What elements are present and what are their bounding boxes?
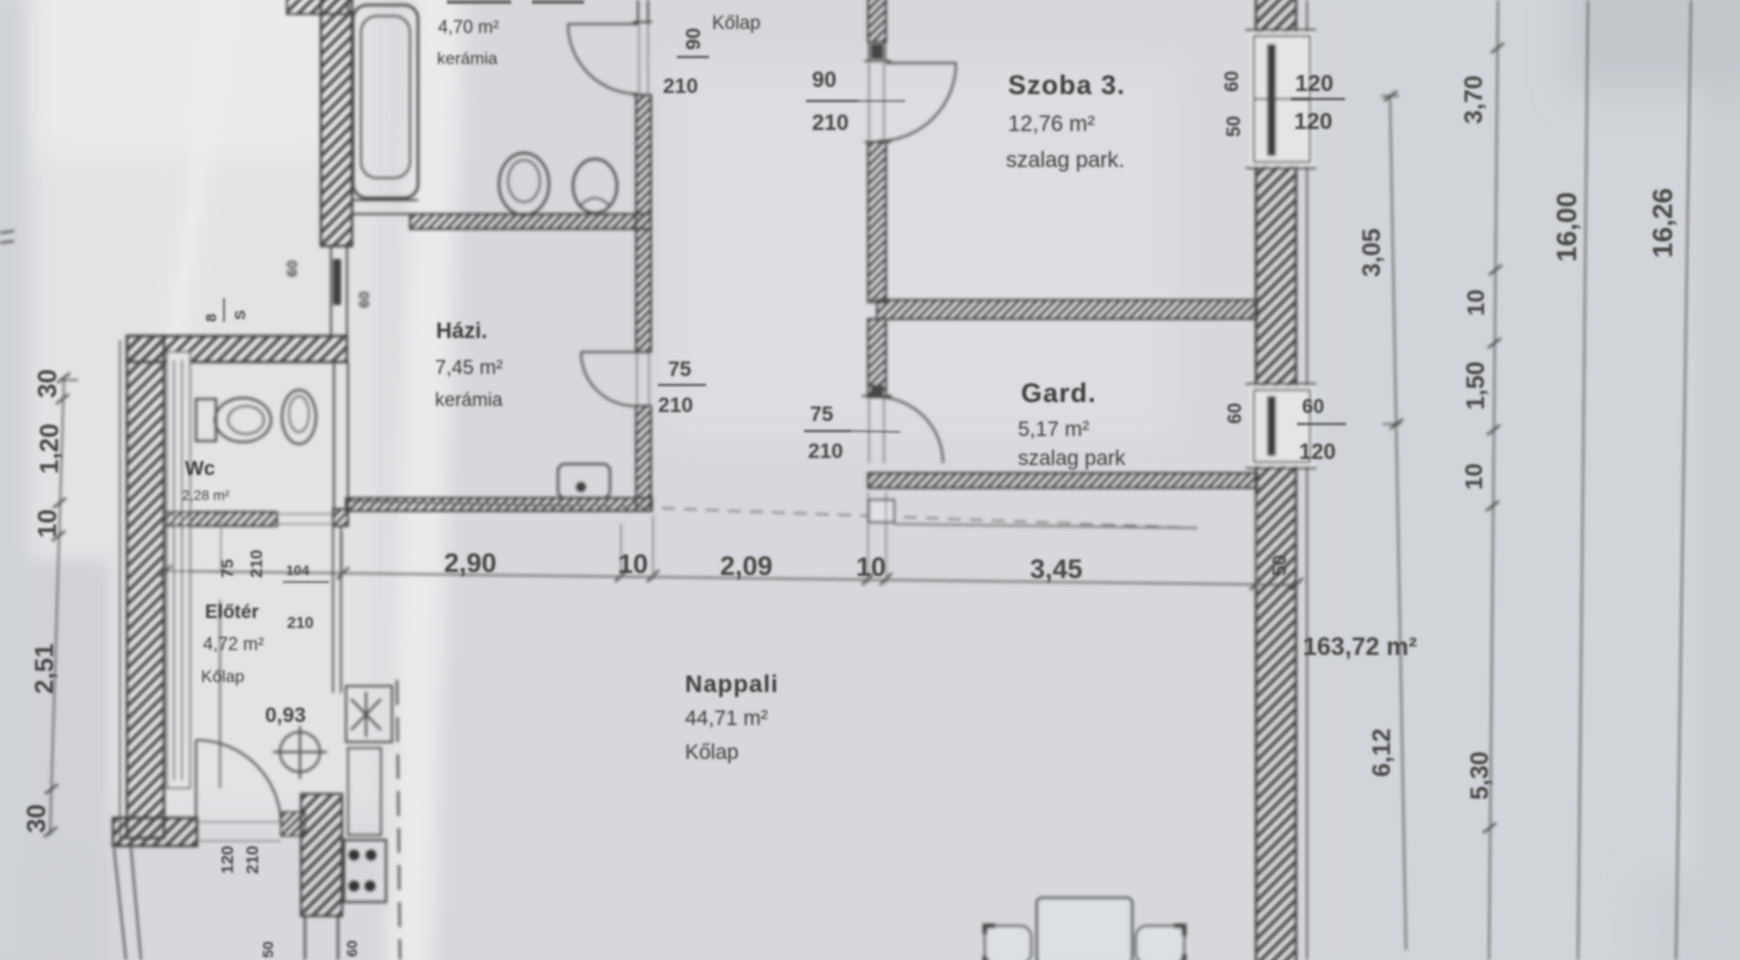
svg-text:4,72 m²: 4,72 m² <box>203 634 264 654</box>
svg-text:2,28 m²: 2,28 m² <box>182 487 230 503</box>
svg-text:2,09: 2,09 <box>720 551 773 581</box>
svg-text:163,72 m²: 163,72 m² <box>1303 633 1417 661</box>
svg-text:50: 50 <box>1270 555 1291 576</box>
svg-text:50: 50 <box>1224 116 1245 137</box>
svg-text:10: 10 <box>618 549 648 579</box>
svg-text:90: 90 <box>683 28 705 50</box>
svg-text:30: 30 <box>32 369 62 398</box>
svg-text:1,50: 1,50 <box>1462 361 1490 410</box>
svg-text:120: 120 <box>1294 108 1332 134</box>
svg-text:7,45 m²: 7,45 m² <box>435 357 503 379</box>
svg-text:60: 60 <box>344 940 361 957</box>
svg-text:10: 10 <box>32 509 62 538</box>
svg-text:16,26: 16,26 <box>1647 188 1678 258</box>
svg-text:120: 120 <box>1295 70 1333 96</box>
svg-text:0,93: 0,93 <box>265 704 306 727</box>
svg-text:50: 50 <box>260 941 277 958</box>
svg-text:S: S <box>232 310 249 320</box>
svg-text:Nappali: Nappali <box>685 671 779 698</box>
svg-text:210: 210 <box>287 615 314 632</box>
svg-text:60: 60 <box>284 260 301 277</box>
svg-text:10: 10 <box>1461 463 1488 490</box>
svg-text:3,45: 3,45 <box>1030 554 1083 584</box>
svg-text:4,70 m²: 4,70 m² <box>438 17 499 37</box>
svg-text:30: 30 <box>21 804 51 833</box>
svg-text:60: 60 <box>356 291 373 308</box>
svg-text:44,71 m²: 44,71 m² <box>685 707 768 730</box>
svg-text:120: 120 <box>1299 439 1336 464</box>
svg-text:Wc: Wc <box>185 458 215 480</box>
svg-text:210: 210 <box>658 394 693 417</box>
svg-text:5,30: 5,30 <box>1466 751 1494 800</box>
svg-text:8: 8 <box>203 314 220 322</box>
svg-text:60: 60 <box>1225 403 1246 424</box>
svg-text:120: 120 <box>218 846 237 874</box>
svg-text:6,12: 6,12 <box>1368 728 1396 777</box>
svg-text:szalag park: szalag park <box>1018 447 1126 470</box>
svg-text:210: 210 <box>243 846 262 874</box>
svg-text:210: 210 <box>247 550 266 578</box>
svg-text:1,20: 1,20 <box>34 423 64 474</box>
svg-text:Gard.: Gard. <box>1021 378 1097 408</box>
svg-text:2,51: 2,51 <box>29 643 59 694</box>
svg-text:90: 90 <box>812 67 836 92</box>
svg-text:75: 75 <box>668 358 692 381</box>
svg-text:kerámia: kerámia <box>435 390 503 411</box>
svg-text:75: 75 <box>810 403 834 426</box>
svg-text:60: 60 <box>1222 71 1243 92</box>
svg-text:104: 104 <box>286 562 310 578</box>
svg-text:Előtér: Előtér <box>205 602 259 623</box>
svg-text:Szoba 3.: Szoba 3. <box>1008 70 1126 100</box>
svg-text:Kőlap: Kőlap <box>201 667 244 686</box>
svg-text:210: 210 <box>812 110 849 135</box>
svg-text:210: 210 <box>663 75 698 98</box>
svg-text:2,90: 2,90 <box>444 548 497 578</box>
svg-text:3,70: 3,70 <box>1460 75 1488 124</box>
svg-text:kerámia: kerámia <box>437 49 498 68</box>
svg-text:75: 75 <box>218 559 237 578</box>
svg-text:3,05: 3,05 <box>1358 228 1386 277</box>
svg-text:Kőlap: Kőlap <box>712 13 761 34</box>
svg-text:12,76 m²: 12,76 m² <box>1008 111 1095 136</box>
svg-text:Kőlap: Kőlap <box>685 741 739 764</box>
svg-text:60: 60 <box>1302 396 1324 418</box>
svg-text:5,17 m²: 5,17 m² <box>1018 418 1089 441</box>
svg-text:16,00: 16,00 <box>1551 192 1582 262</box>
svg-text:szalag park.: szalag park. <box>1006 147 1125 172</box>
svg-text:210: 210 <box>808 440 843 463</box>
svg-text:10: 10 <box>1463 289 1490 316</box>
svg-text:Házi.: Házi. <box>436 318 487 343</box>
svg-text:10: 10 <box>856 552 886 582</box>
